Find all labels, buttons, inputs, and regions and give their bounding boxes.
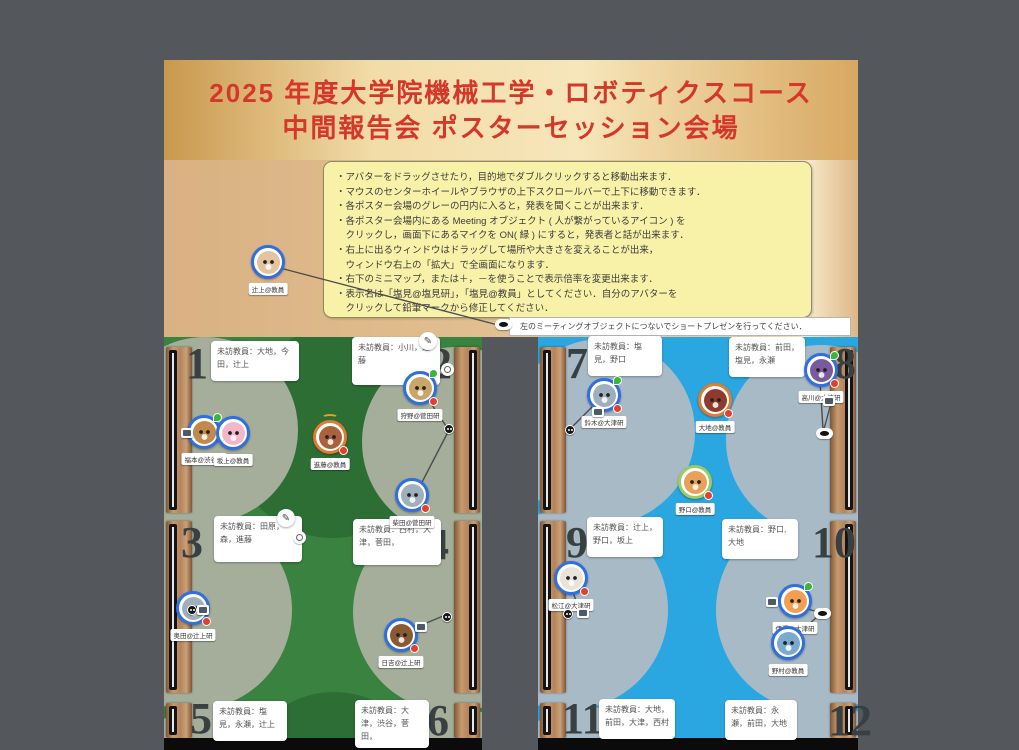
unvisited-faculty-card-9: 未訪教員：辻上，野口，坂上	[587, 517, 663, 557]
zone-number-3: 3	[181, 521, 203, 565]
zone-number-10: 10	[812, 521, 856, 565]
unvisited-faculty-card-11: 未訪教員：大地，前田，大津，西村	[599, 699, 675, 739]
virtual-poster-session-space: 2025 年度大学院機械工学・ロボティクスコース 中間報告会 ポスターセッション…	[0, 0, 1019, 750]
avatar-noguchi[interactable]: 野口@教員	[678, 465, 712, 499]
avatar-face	[784, 590, 807, 613]
instruction-line: クリックして鉛筆マークから修正してください．	[336, 302, 799, 317]
instruction-line: ・各ポスター会場のグレーの円内に入ると，発表を聞くことが出来ます．	[336, 200, 799, 215]
notice-bar: 左のミーティングオブジェクトにつないでショートプレゼンを行ってください．	[509, 317, 851, 336]
meeting-object-icon[interactable]	[565, 425, 575, 435]
meeting-object-icon[interactable]	[442, 612, 452, 622]
unvisited-faculty-card-1: 未訪教員：大地，今田，辻上	[211, 341, 299, 381]
avatar-takagawa[interactable]: 高川@大津研	[804, 353, 838, 387]
poster-board[interactable]	[454, 521, 480, 693]
status-circle-icon[interactable]	[441, 363, 454, 376]
zone-number-1: 1	[186, 342, 208, 386]
mic-off-icon	[704, 491, 713, 500]
banner: 2025 年度大学院機械工学・ロボティクスコース 中間報告会 ポスターセッション…	[164, 60, 858, 160]
avatar-nomura[interactable]: 野村@教員	[771, 626, 805, 660]
avatar-face	[319, 426, 342, 449]
avatar-face	[390, 624, 413, 647]
unvisited-faculty-card-6: 未訪教員：大津，渋谷，菅田，	[355, 700, 429, 748]
screen-share-icon[interactable]	[415, 622, 427, 632]
avatar-face	[704, 389, 727, 412]
avatar-name-label: 野口@教員	[676, 503, 715, 515]
leaf-status-icon	[830, 351, 839, 360]
poster-board[interactable]	[454, 347, 480, 513]
avatar-name-label: 辻上@教員	[249, 283, 288, 295]
mic-off-icon	[202, 617, 211, 626]
zone-number-7: 7	[566, 342, 588, 386]
avatar-face	[401, 484, 424, 507]
avatar-face	[810, 359, 833, 382]
avatar-face	[409, 377, 432, 400]
meeting-object-icon[interactable]	[563, 609, 573, 619]
instruction-line: ・右下のミニマップ，または＋，－を使うことで表示倍率を変更出来ます．	[336, 273, 799, 288]
screen-share-icon[interactable]	[181, 428, 193, 438]
poster-board-frame	[543, 706, 551, 735]
avatar-face	[593, 384, 616, 407]
unvisited-faculty-card-8: 未訪教員：前田，塩見，永瀬	[729, 337, 805, 377]
zone-number-6: 6	[427, 699, 449, 743]
screen-share-icon[interactable]	[197, 605, 209, 615]
poster-board-frame	[169, 350, 177, 510]
screen-share-icon[interactable]	[577, 608, 589, 618]
avatar-kano[interactable]: 狩野@菅田研	[403, 371, 437, 405]
avatar-sakagami[interactable]: 坂上@教員	[216, 416, 250, 450]
screen-share-icon[interactable]	[766, 597, 778, 607]
poster-board-frame	[469, 350, 477, 510]
screen-share-icon[interactable]	[823, 396, 835, 406]
leaf-status-icon	[613, 376, 622, 385]
avatar-name-label: 鈴木@大津研	[581, 416, 626, 428]
avatar-tsujikami[interactable]: 辻上@教員	[251, 245, 285, 279]
instruction-line: クリックし，画面下にあるマイクを ON( 緑 ) にすると，発表者と話が出来ます…	[336, 229, 799, 244]
poster-board[interactable]	[540, 347, 566, 513]
avatar-izawa[interactable]: 伊澤@大津研	[778, 584, 812, 618]
poster-board[interactable]	[166, 703, 192, 738]
poster-board[interactable]	[454, 703, 480, 738]
leaf-status-icon	[804, 582, 813, 591]
avatar-shibata[interactable]: 柴田@菅田研	[395, 478, 429, 512]
instruction-line: ・アバターをドラッグさせたり，目的地でダブルクリックすると移動出来ます．	[336, 171, 799, 186]
eye-icon[interactable]	[816, 428, 833, 439]
avatar-face	[560, 567, 583, 590]
avatar-name-label: 野村@教員	[769, 664, 808, 676]
avatar-name-label: 柴田@菅田研	[389, 516, 434, 528]
meeting-object-icon[interactable]	[444, 424, 454, 434]
zone-number-12: 12	[828, 699, 872, 743]
leaf-status-icon	[429, 369, 438, 378]
mic-off-icon	[429, 397, 438, 406]
mic-off-icon	[830, 379, 839, 388]
halo-icon	[322, 414, 338, 421]
unvisited-faculty-card-7: 未訪教員：塩見，野口	[588, 336, 662, 376]
edit-pencil-icon[interactable]: ✎	[419, 332, 437, 350]
avatar-face	[193, 421, 216, 444]
instruction-line: ・マウスのセンターホイールやブラウザの上下スクロールバーで上下に移動できます．	[336, 186, 799, 201]
instruction-line: ・各ポスター会場内にある Meeting オブジェクト ( 人が繋がっているアイ…	[336, 215, 799, 230]
poster-board-frame	[543, 350, 551, 510]
poster-board-frame	[169, 706, 177, 735]
instruction-line: ウィンドウ右上の「拡大」で全画面になります．	[336, 259, 799, 274]
meeting-object-icon[interactable]	[187, 605, 197, 615]
avatar-face	[222, 422, 245, 445]
avatar-face	[684, 471, 707, 494]
avatar-name-label: 進藤@教員	[311, 458, 350, 470]
avatar-hiyoshi[interactable]: 日吉@辻上研	[384, 618, 418, 652]
mic-off-icon	[339, 446, 348, 455]
mic-off-icon	[410, 644, 419, 653]
avatar-shindo[interactable]: 進藤@教員	[313, 420, 347, 454]
avatar-name-label: 大地@教員	[696, 421, 735, 433]
avatar-oochi[interactable]: 大地@教員	[698, 383, 732, 417]
mic-off-icon	[421, 504, 430, 513]
avatar-name-label: 奥田@辻上研	[170, 629, 215, 641]
instruction-line: ・表示名は「塩見@塩見研」，「塩見@教員」としてください．自分のアバターを	[336, 288, 799, 303]
edit-pencil-icon[interactable]: ✎	[277, 509, 295, 527]
avatar-name-label: 坂上@教員	[214, 454, 253, 466]
zone-number-5: 5	[190, 697, 212, 741]
title-line1: 2025 年度大学院機械工学・ロボティクスコース	[209, 78, 812, 108]
mic-off-icon	[580, 587, 589, 596]
avatar-name-label: 狩野@菅田研	[397, 409, 442, 421]
avatar-face	[777, 632, 800, 655]
avatar-matsue[interactable]: 松江@大津研	[554, 561, 588, 595]
eye-icon[interactable]	[814, 608, 831, 619]
mic-off-icon	[724, 409, 733, 418]
avatar-face	[257, 251, 280, 274]
avatar-name-label: 日吉@辻上研	[378, 656, 423, 668]
title-line2: 中間報告会 ポスターセッション会場	[282, 113, 739, 143]
poster-board-frame	[469, 524, 477, 690]
instruction-line: ・右上に出るウィンドウはドラッグして場所や大きさを変えることが出来，	[336, 244, 799, 259]
poster-board-frame	[469, 706, 477, 735]
status-circle-icon[interactable]	[293, 531, 306, 544]
zone-number-9: 9	[566, 521, 588, 565]
screen-share-icon[interactable]	[592, 407, 604, 417]
mic-off-icon	[613, 404, 622, 413]
instructions-panel: ・アバターをドラッグさせたり，目的地でダブルクリックすると移動出来ます． ・マウ…	[323, 161, 812, 318]
avatar-name-label: 高川@大津研	[798, 391, 843, 403]
zone-number-11: 11	[562, 697, 604, 741]
unvisited-faculty-card-5: 未訪教員：塩見，永瀬，辻上	[213, 701, 287, 741]
unvisited-faculty-card-12: 未訪教員：永瀬，前田，大地	[725, 700, 797, 740]
unvisited-faculty-card-10: 未訪教員：野口,大地	[722, 519, 798, 559]
eye-icon[interactable]	[495, 319, 512, 330]
page-title: 2025 年度大学院機械工学・ロボティクスコース 中間報告会 ポスターセッション…	[164, 76, 858, 146]
